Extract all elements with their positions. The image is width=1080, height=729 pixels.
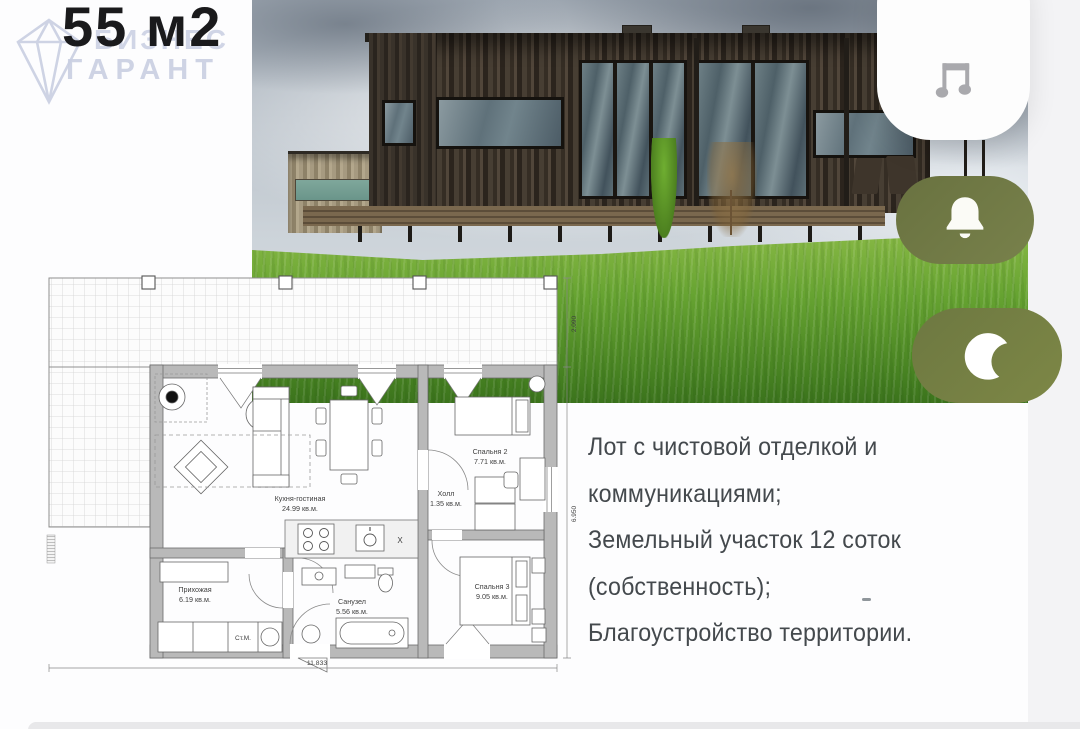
description-line: Лот с чистовой отделкой и коммуникациями… [588, 424, 1072, 517]
dim-depth: 6.950 [571, 505, 578, 522]
floor-plan: Кухня-гостиная 24.99 кв.м. Спальня 2 7.7… [40, 262, 590, 702]
room-label: Спальня 2 [473, 447, 508, 456]
room-area: 24.99 кв.м. [282, 504, 318, 513]
music-button[interactable] [877, 0, 1030, 140]
terrace-deck-top [49, 278, 557, 367]
dry-tree-trunk [730, 190, 732, 235]
small-dry-tree [707, 142, 757, 237]
floor-plan-drawing: Кухня-гостиная 24.99 кв.м. Спальня 2 7.7… [40, 262, 590, 702]
dim-terrace: 2.090 [571, 315, 578, 332]
room-label: Санузел [338, 597, 366, 606]
wooden-deck [303, 206, 885, 226]
crescent-moon-icon [956, 325, 1018, 387]
glass-pane [582, 63, 617, 196]
night-mode-button[interactable] [912, 308, 1062, 403]
music-note-icon [928, 56, 980, 104]
page-title: 55 м2 [62, 0, 222, 59]
deck-stilts [312, 226, 872, 242]
room-area: 9.05 кв.м. [476, 592, 508, 601]
separator-dash [862, 598, 871, 601]
terrace-deck-left [49, 367, 150, 527]
room-area: 1.35 кв.м. [430, 499, 462, 508]
description-line: Земельный участок 12 соток (собственност… [588, 517, 1072, 610]
room-label: Холл [438, 489, 455, 498]
facade-post [694, 38, 699, 213]
listing-card: БИЗНЕС ГАРАНТ 55 м2 [0, 0, 1080, 729]
deck-chair [851, 158, 882, 194]
hallway-furniture [158, 562, 282, 652]
living-furniture [155, 374, 382, 494]
porch-hatch [47, 535, 55, 563]
description-line: Благоустройство территории. [588, 610, 1072, 657]
room-area: 5.56 кв.м. [336, 607, 368, 616]
horizontal-window [436, 97, 564, 149]
glass-pane [617, 63, 652, 196]
annex-window-band [295, 179, 377, 201]
room-area: 7.71 кв.м. [474, 457, 506, 466]
description: Лот с чистовой отделкой и коммуникациями… [588, 424, 1072, 657]
dim-width: 11.833 [307, 660, 328, 667]
room-label: Прихожая [178, 585, 211, 594]
room-label: Спальня 3 [475, 582, 510, 591]
kitchen-x-label: Х [397, 536, 403, 545]
main-house [369, 33, 930, 213]
room-area: 6.19 кв.м. [179, 595, 211, 604]
small-green-tree [651, 138, 677, 238]
bell-icon [935, 191, 995, 249]
washing-machine-label: Ст.М. [235, 635, 251, 642]
side-window [382, 100, 416, 146]
glass-pane [755, 63, 807, 196]
room-label: Кухня-гостиная [275, 494, 326, 503]
next-card-edge[interactable] [28, 722, 1080, 729]
facade-post [844, 38, 849, 213]
notifications-button[interactable] [896, 176, 1034, 264]
